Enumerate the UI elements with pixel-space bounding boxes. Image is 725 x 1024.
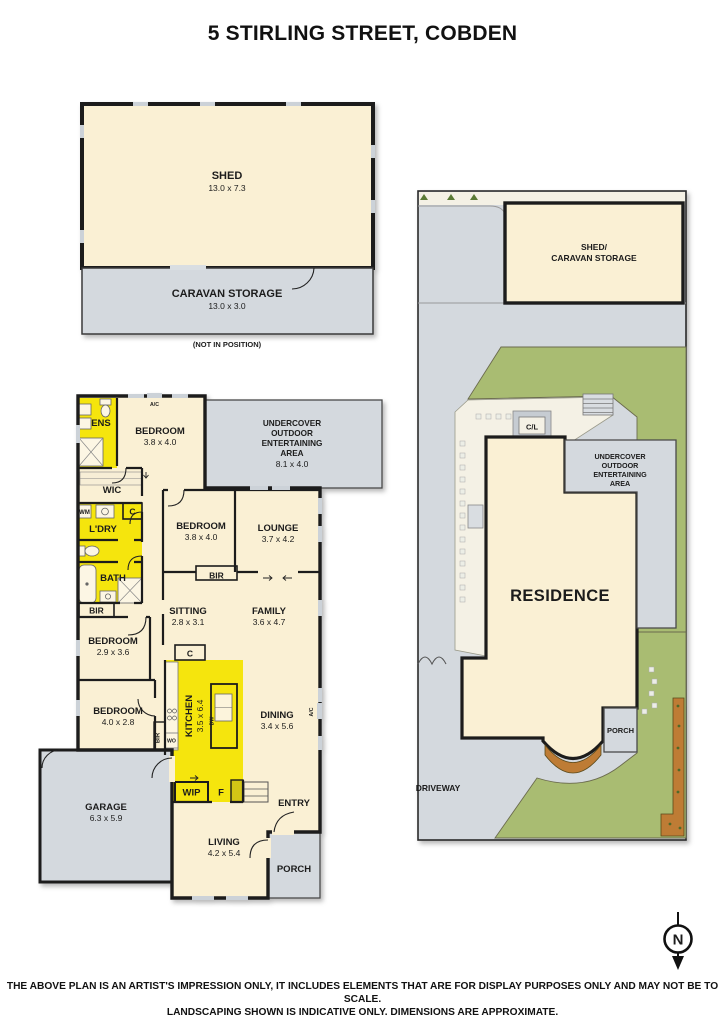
ldry-label: L'DRY [89, 524, 117, 535]
plan-canvas: SHED 13.0 x 7.3 CARAVAN STORAGE 13.0 x 3… [0, 0, 725, 1024]
disclaimer: THE ABOVE PLAN IS AN ARTIST'S IMPRESSION… [0, 980, 725, 1019]
clothesline: C/L [513, 411, 551, 439]
site-uoea-label-2: OUTDOOR [602, 461, 640, 470]
caravan-storage-label: CARAVAN STORAGE [172, 288, 283, 300]
dining-dims: 3.4 x 5.6 [261, 721, 294, 731]
site-uoea-label-1: UNDERCOVER [594, 452, 646, 461]
wo-label: WO [167, 739, 176, 745]
bedroom1-dims: 3.8 x 4.0 [144, 437, 177, 447]
cupboard2-label: C [187, 649, 193, 659]
family-dims: 3.6 x 4.7 [253, 617, 286, 627]
sitting-dims: 2.8 x 3.1 [172, 617, 205, 627]
garage-dims: 6.3 x 5.9 [90, 813, 123, 823]
fp-uoea-label-2: OUTDOOR [271, 429, 313, 438]
living-dims: 4.2 x 5.4 [208, 848, 241, 858]
fridge-label: F [218, 788, 224, 799]
cupboard1-label: C [129, 507, 135, 517]
bedroom3-dims: 2.9 x 3.6 [97, 647, 130, 657]
bath-label: BATH [100, 573, 126, 584]
wic-shelf [80, 472, 142, 485]
kitchen-dims: 3.5 x 6.4 [195, 699, 205, 732]
shed-dims: 13.0 x 7.3 [208, 183, 246, 193]
site-shed-label-2: CARAVAN STORAGE [551, 253, 637, 263]
bedroom4-dims: 4.0 x 2.8 [102, 717, 135, 727]
entry-label: ENTRY [278, 798, 311, 809]
main-floor-plan: ENS BEDROOM 3.8 x 4.0 UNDERCOVER OUTDOOR… [40, 393, 382, 900]
not-in-position-note: (NOT IN POSITION) [193, 340, 262, 349]
bedroom3-label: BEDROOM [88, 636, 138, 647]
bedroom1-label: BEDROOM [135, 426, 185, 437]
fp-uoea-dims: 8.1 x 4.0 [276, 459, 309, 469]
bir2-label: BIR [209, 571, 224, 581]
dw-label: DW [210, 717, 216, 726]
fp-uoea-label-1: UNDERCOVER [263, 419, 321, 428]
shed-label: SHED [212, 170, 243, 182]
floorplan-page: 5 STIRLING STREET, COBDEN SHED 13.0 x 7.… [0, 0, 725, 1024]
bir3-label: BIR [156, 732, 162, 743]
sitting-label: SITTING [169, 606, 206, 617]
north-arrow-icon: N [665, 912, 692, 970]
clothesline-label: C/L [526, 423, 539, 432]
family-label: FAMILY [252, 606, 287, 617]
wm-label: WM [79, 510, 90, 516]
ac1-label: A/C [150, 402, 159, 408]
bedroom2-label: BEDROOM [176, 521, 226, 532]
disclaimer-line-2: LANDSCAPING SHOWN IS INDICATIVE ONLY. DI… [0, 1006, 725, 1019]
fp-porch-label: PORCH [277, 864, 311, 875]
ens-label: ENS [91, 418, 111, 429]
residence-label: RESIDENCE [510, 587, 610, 605]
garden-steps [583, 394, 613, 415]
living-label: LIVING [208, 837, 240, 848]
fridge-box [231, 780, 243, 802]
caravan-storage-dims: 13.0 x 3.0 [208, 301, 246, 311]
site-shed-label-1: SHED/ [581, 242, 608, 252]
north-label: N [673, 932, 684, 949]
garage-label: GARAGE [85, 802, 127, 813]
dining-label: DINING [260, 710, 293, 721]
shed-plan: SHED 13.0 x 7.3 CARAVAN STORAGE 13.0 x 3… [80, 102, 375, 334]
kitchen-label: KITCHEN [184, 695, 195, 737]
ac2-label: A/C [309, 707, 315, 716]
utility-box [468, 505, 483, 528]
site-uoea-label-3: ENTERTAINING [593, 470, 647, 479]
fp-uoea-label-4: AREA [280, 449, 303, 458]
site-plan: C/L SHED/ CARAVAN STORAGE UNDERCOVER OUT… [416, 191, 686, 840]
site-uoea-label-4: AREA [610, 479, 630, 488]
driveway-label: DRIVEWAY [416, 783, 461, 793]
fp-uoea-label-3: ENTERTAINING [262, 439, 323, 448]
lounge-label: LOUNGE [258, 523, 299, 534]
bir1-label: BIR [89, 606, 104, 616]
bedroom4-label: BEDROOM [93, 706, 143, 717]
wip-label: WIP [183, 788, 202, 799]
wic-label: WIC [103, 485, 122, 496]
disclaimer-line-1: THE ABOVE PLAN IS AN ARTIST'S IMPRESSION… [0, 980, 725, 1006]
lounge-dims: 3.7 x 4.2 [262, 534, 295, 544]
wc-fixtures [79, 546, 99, 556]
site-porch-label: PORCH [607, 726, 634, 735]
bedroom2-dims: 3.8 x 4.0 [185, 532, 218, 542]
